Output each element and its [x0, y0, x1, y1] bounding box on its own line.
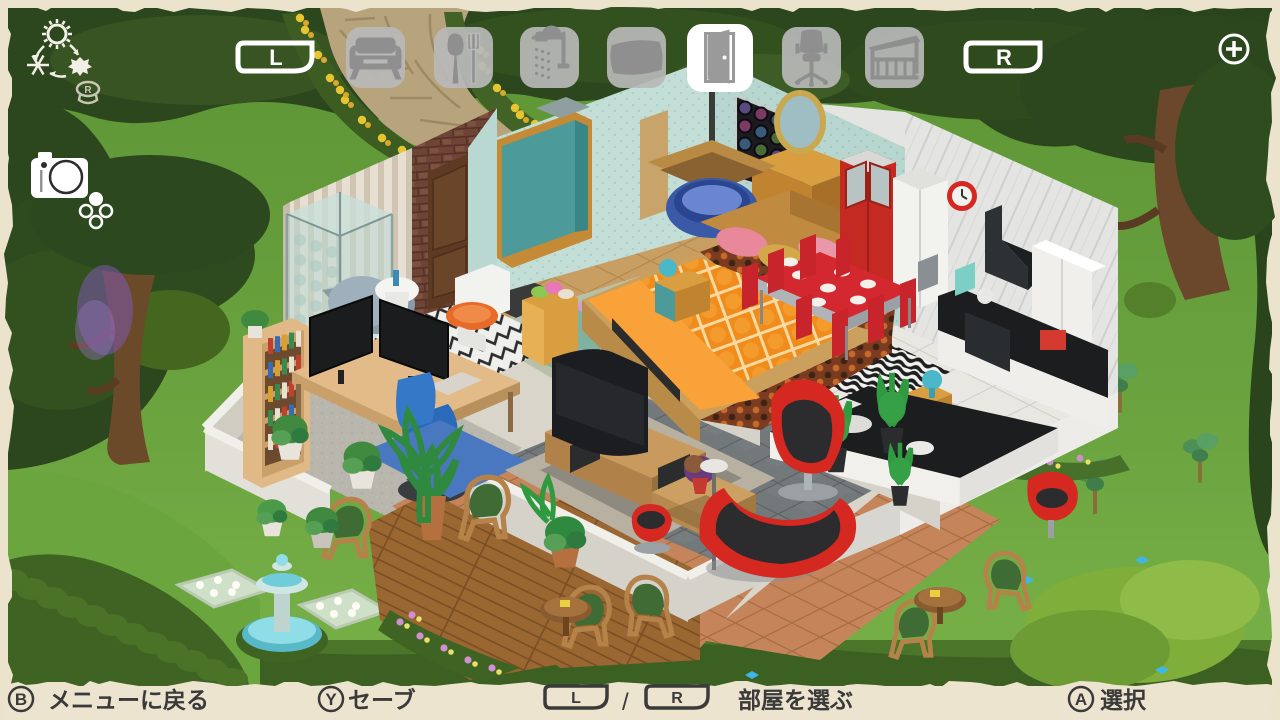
svg-text:セーブ: セーブ — [348, 687, 416, 713]
svg-text:選択: 選択 — [1100, 687, 1147, 713]
svg-text:R: R — [996, 45, 1012, 70]
svg-text:R: R — [84, 85, 92, 96]
svg-text:L: L — [269, 45, 282, 70]
svg-text:L: L — [571, 690, 581, 707]
svg-text:B: B — [15, 690, 27, 709]
svg-text:部屋を選ぶ: 部屋を選ぶ — [738, 687, 853, 713]
svg-text:R: R — [671, 690, 683, 707]
svg-text:Y: Y — [325, 690, 337, 709]
svg-text:A: A — [1075, 690, 1087, 709]
svg-text:/: / — [622, 689, 629, 716]
svg-text:メニューに戻る: メニューに戻る — [48, 687, 209, 713]
